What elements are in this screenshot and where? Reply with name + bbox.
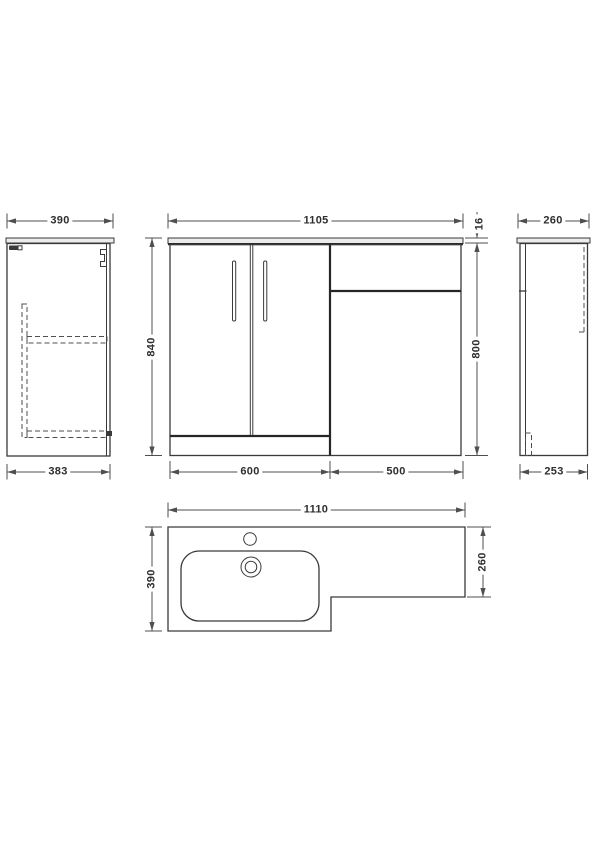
hinge-bracket-top bbox=[101, 250, 107, 267]
waste-drain bbox=[241, 557, 261, 577]
dim-label-front-800: 800 bbox=[471, 336, 484, 361]
side-left-counter-top bbox=[6, 238, 114, 243]
hidden-door-strip bbox=[22, 304, 27, 438]
dim-label-front-840: 840 bbox=[146, 334, 159, 359]
vanity-unit-technical-drawing: 390 383 1105 16 840 800 600 500 260 253 … bbox=[0, 0, 600, 849]
drawing-linework bbox=[0, 0, 600, 849]
front-view bbox=[145, 212, 488, 479]
dim-label-side-right-253: 253 bbox=[541, 466, 566, 479]
tap-hole bbox=[244, 533, 257, 546]
hidden-bottom-panel bbox=[27, 431, 107, 438]
hidden-cistern-line bbox=[579, 247, 585, 332]
damper-tip bbox=[18, 246, 22, 250]
dim-label-front-1105: 1105 bbox=[300, 215, 331, 228]
hidden-foot bbox=[526, 433, 532, 456]
front-cabinet-body bbox=[170, 245, 461, 456]
dim-label-front-600: 600 bbox=[237, 466, 262, 479]
side-right-counter-top bbox=[517, 238, 590, 243]
front-dim-600-500 bbox=[170, 461, 463, 479]
dim-label-plan-390: 390 bbox=[146, 566, 159, 591]
dim-label-side-right-260: 260 bbox=[540, 215, 565, 228]
dim-label-front-500: 500 bbox=[383, 466, 408, 479]
side-view-right bbox=[517, 214, 590, 480]
plan-view bbox=[145, 503, 491, 632]
plan-counter-outline bbox=[168, 527, 465, 631]
hidden-shelf bbox=[27, 337, 107, 344]
dim-label-plan-260: 260 bbox=[477, 549, 490, 574]
damper-mark bbox=[9, 246, 18, 251]
side-right-cabinet-body bbox=[520, 244, 588, 456]
door-handle-left bbox=[233, 261, 236, 321]
front-counter-top bbox=[168, 238, 463, 244]
front-dim-16-800 bbox=[465, 212, 488, 456]
hinge-mark-bottom bbox=[106, 431, 112, 436]
dim-label-plan-1110: 1110 bbox=[301, 504, 331, 517]
dim-label-side-left-390: 390 bbox=[47, 215, 72, 228]
dim-label-front-16: 16 bbox=[474, 215, 487, 234]
door-handle-right bbox=[264, 261, 267, 321]
dim-label-side-left-383: 383 bbox=[45, 466, 70, 479]
side-view-left bbox=[6, 214, 114, 480]
